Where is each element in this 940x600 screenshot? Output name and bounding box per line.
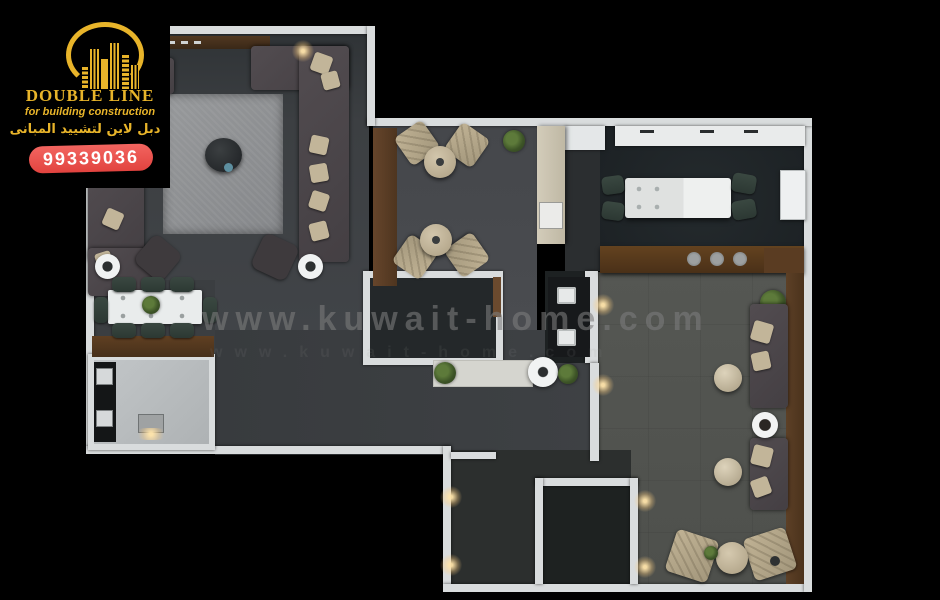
- door-light-glow: [134, 428, 168, 440]
- wall-sconce-glow: [440, 554, 462, 576]
- dining-chair: [601, 175, 625, 196]
- dining-chair: [112, 323, 136, 338]
- sofa-pillow: [308, 134, 329, 155]
- company-name-arabic: دبل لاين لتشييد المبانى: [5, 122, 165, 137]
- wall-inner-left: [535, 478, 543, 584]
- watermark-text-faint: www.kuwait-home.com: [210, 344, 614, 362]
- wall-stub-kitchen: [565, 126, 605, 150]
- floor-pouf-round: [714, 364, 742, 392]
- tray-icon: [432, 236, 440, 244]
- building-icon: [101, 59, 108, 89]
- logo-emblem: [66, 22, 154, 92]
- sofa-pillow: [750, 350, 771, 371]
- dining-table-main: [625, 178, 731, 218]
- building-icon: [90, 49, 99, 89]
- buffet-cabinet: [92, 336, 214, 357]
- fridge: [780, 170, 806, 220]
- company-tagline: for building construction: [10, 106, 170, 118]
- washer-icon: [96, 368, 113, 385]
- inner-room-floor: [543, 486, 630, 586]
- table-plant: [142, 296, 160, 314]
- wall-sconce-glow: [634, 490, 656, 512]
- window-ledge-dining: [615, 126, 805, 146]
- dining-chair: [141, 277, 165, 292]
- watermark-text: www.kuwait-home.com: [202, 300, 710, 339]
- bar-stool: [733, 252, 747, 266]
- decor-table: [752, 412, 778, 438]
- washer-icon: [96, 410, 113, 427]
- bar-stool: [687, 252, 701, 266]
- dining-side-cabinet: [764, 248, 804, 273]
- wall-sconce-glow: [592, 374, 614, 396]
- family-wood-panel: [786, 273, 804, 584]
- building-icon: [122, 55, 129, 89]
- media-item: [181, 41, 188, 44]
- potted-plant: [503, 130, 525, 152]
- dining-chair: [112, 277, 136, 292]
- potted-plant: [434, 362, 456, 384]
- window-frame-mark: [700, 130, 714, 133]
- building-icon: [110, 43, 120, 89]
- utility-room: [88, 354, 215, 450]
- ceiling-light-glow: [292, 40, 314, 62]
- wall-bottom-main: [443, 584, 812, 592]
- company-name: DOUBLE LINE: [10, 86, 170, 106]
- window-frame-mark: [744, 130, 758, 133]
- media-item: [194, 41, 201, 44]
- side-table: [95, 254, 120, 279]
- side-table: [298, 254, 323, 279]
- round-tea-table: [716, 542, 748, 574]
- tray-icon: [436, 158, 444, 166]
- dining-chair: [731, 172, 758, 195]
- tray-icon: [770, 556, 780, 566]
- wall-bottomroom-top: [451, 452, 496, 459]
- table-deco: [224, 163, 233, 172]
- bar-stool: [710, 252, 724, 266]
- wall-top-main: [367, 118, 812, 126]
- floor-pouf-round: [714, 458, 742, 486]
- window-frame-mark: [640, 130, 654, 133]
- dining-chair: [170, 277, 194, 292]
- potted-plant: [558, 364, 578, 384]
- kitchen-floor: [565, 148, 605, 271]
- dining-chair: [141, 323, 165, 338]
- dining-chair: [170, 323, 194, 338]
- floorplan-render: www.kuwait-home.com www.kuwait-home.com …: [0, 0, 940, 600]
- wall-top-living: [150, 26, 375, 34]
- potted-plant: [704, 546, 718, 560]
- dining-chair: [601, 201, 625, 222]
- dining-chair: [94, 297, 108, 323]
- phone-badge: 99339036: [29, 143, 154, 173]
- wall-inner-top: [535, 478, 638, 486]
- sofa-pillow: [309, 163, 330, 184]
- wall-living-right: [367, 26, 375, 126]
- kitchen-sink: [539, 202, 563, 229]
- wall-sconce-glow: [440, 486, 462, 508]
- wall-sconce-glow: [634, 556, 656, 578]
